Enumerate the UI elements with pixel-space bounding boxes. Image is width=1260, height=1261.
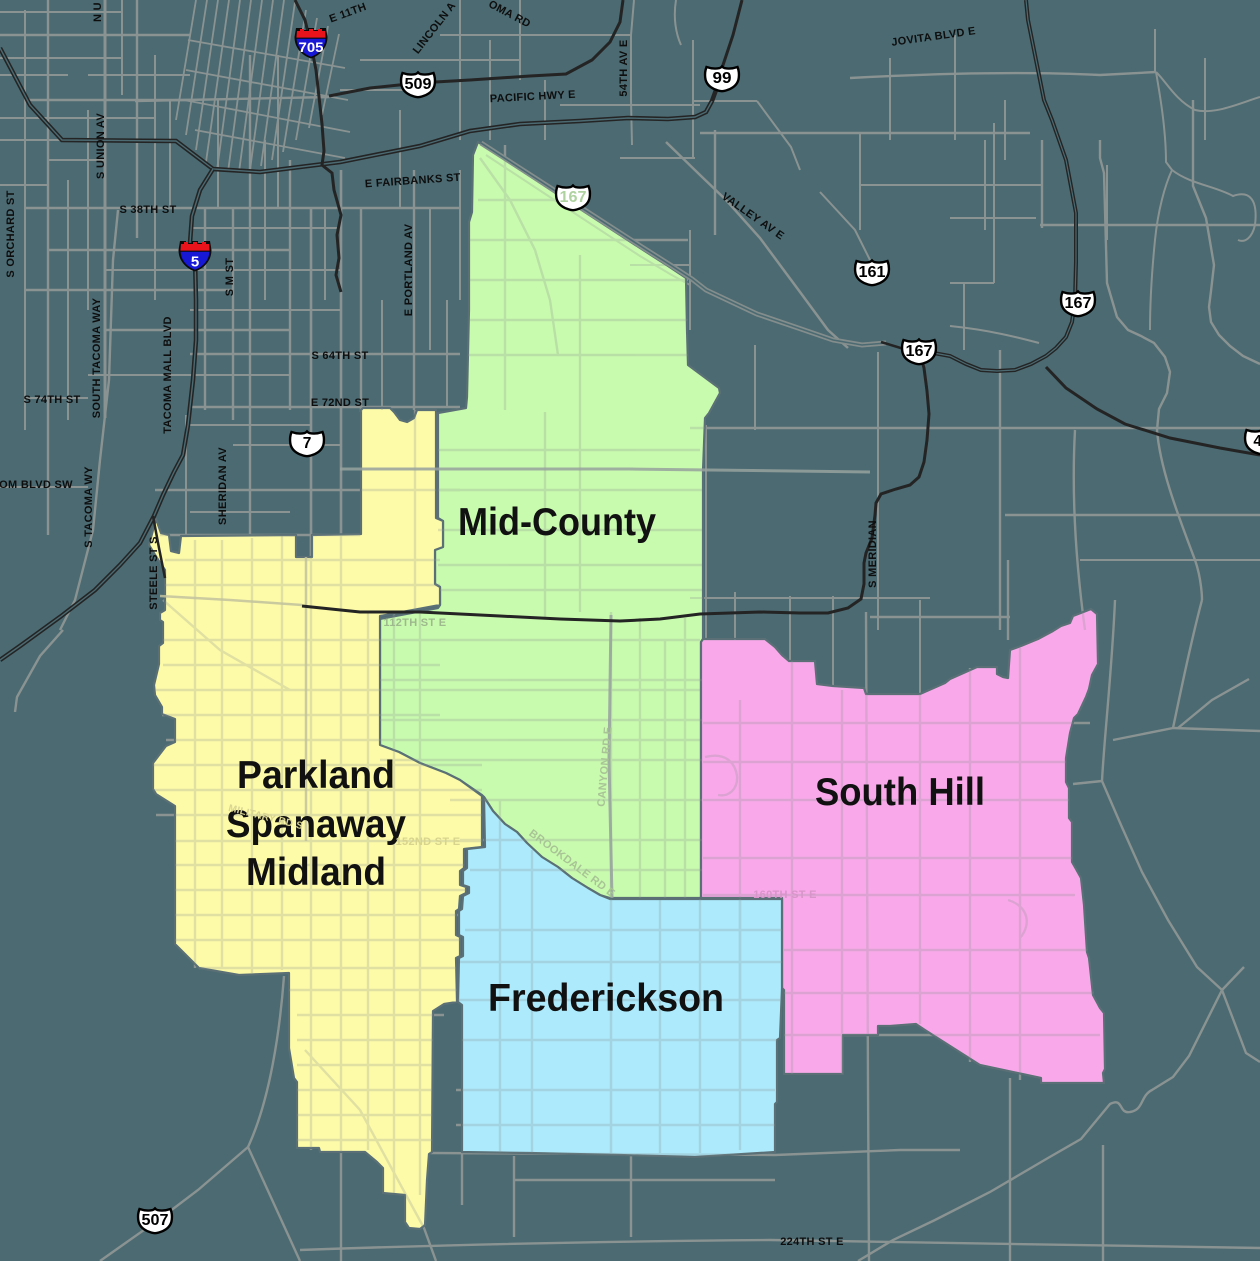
svg-text:152ND ST E: 152ND ST E bbox=[396, 836, 461, 848]
svg-text:S UNION AV: S UNION AV bbox=[95, 113, 107, 179]
svg-text:STEELE ST S: STEELE ST S bbox=[148, 536, 160, 610]
svg-text:Frederickson: Frederickson bbox=[488, 977, 724, 1020]
svg-text:S ORCHARD ST: S ORCHARD ST bbox=[5, 190, 17, 277]
svg-text:7: 7 bbox=[303, 435, 312, 452]
svg-text:Mid-County: Mid-County bbox=[458, 501, 656, 544]
svg-text:S MERIDIAN: S MERIDIAN bbox=[867, 520, 879, 588]
svg-text:161: 161 bbox=[859, 264, 886, 281]
svg-text:Midland: Midland bbox=[246, 851, 386, 894]
svg-text:160TH ST E: 160TH ST E bbox=[753, 889, 817, 901]
svg-text:TACOMA MALL BLVD: TACOMA MALL BLVD bbox=[162, 316, 174, 433]
svg-text:167: 167 bbox=[906, 343, 933, 360]
svg-text:South Hill: South Hill bbox=[815, 771, 985, 814]
svg-text:S TACOMA WY: S TACOMA WY bbox=[83, 466, 95, 548]
svg-text:S M ST: S M ST bbox=[224, 258, 236, 296]
svg-text:112TH ST E: 112TH ST E bbox=[384, 617, 447, 629]
svg-text:OM BLVD SW: OM BLVD SW bbox=[0, 479, 73, 491]
svg-text:167: 167 bbox=[1065, 295, 1092, 312]
svg-text:SHERIDAN AV: SHERIDAN AV bbox=[217, 447, 229, 525]
svg-text:99: 99 bbox=[713, 70, 732, 87]
svg-text:54TH AV E: 54TH AV E bbox=[618, 39, 630, 96]
svg-text:S 64TH ST: S 64TH ST bbox=[311, 350, 368, 362]
svg-text:167: 167 bbox=[560, 189, 587, 206]
svg-text:41: 41 bbox=[1253, 433, 1260, 450]
svg-text:SOUTH TACOMA WAY: SOUTH TACOMA WAY bbox=[91, 297, 103, 418]
svg-text:E 72ND ST: E 72ND ST bbox=[311, 397, 369, 409]
svg-text:S 74TH ST: S 74TH ST bbox=[23, 394, 80, 406]
svg-text:Parkland: Parkland bbox=[237, 754, 395, 797]
svg-text:N U: N U bbox=[92, 2, 104, 22]
svg-text:5: 5 bbox=[191, 254, 199, 271]
svg-text:S 38TH ST: S 38TH ST bbox=[119, 204, 176, 216]
svg-text:507: 507 bbox=[142, 1212, 169, 1229]
svg-text:705: 705 bbox=[299, 40, 325, 55]
svg-text:E PORTLAND AV: E PORTLAND AV bbox=[403, 223, 415, 316]
svg-text:509: 509 bbox=[405, 76, 432, 93]
svg-text:224TH ST E: 224TH ST E bbox=[780, 1236, 844, 1248]
